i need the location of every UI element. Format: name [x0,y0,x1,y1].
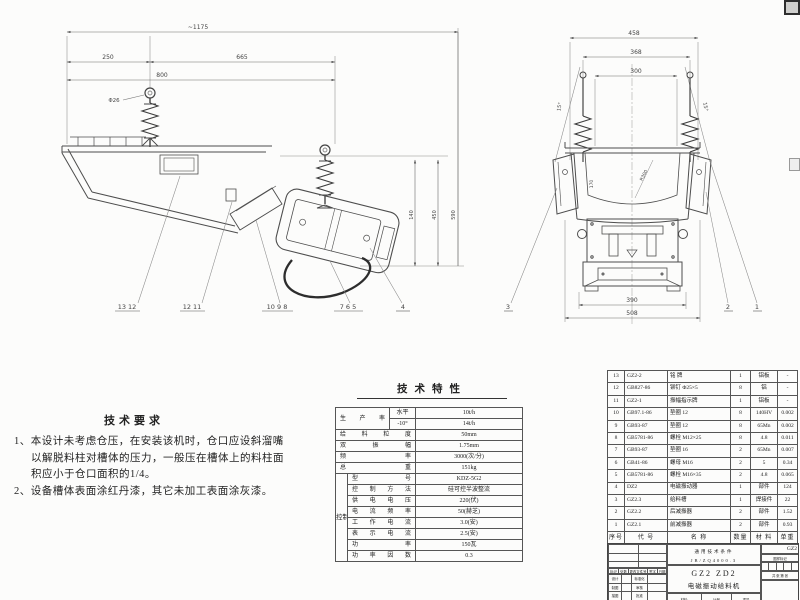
part-no: 9 [608,420,625,432]
dim-depth: 170 [589,180,595,189]
part-name: 垫圈 12 [668,408,731,420]
spec-row: 功率 150瓦 [336,540,523,551]
part-name: 给料槽 [668,494,731,506]
spec-row: 生产率 水平 10t/h [336,408,523,419]
part-no: 13 [608,371,625,383]
dim-v1: 140 [409,210,415,220]
parts-row: 13 GZ2-2 铭 牌 1 铝板 - [608,371,798,383]
spec-row: 供电电压 220(伏) [336,496,523,507]
vibrator-front [578,219,688,262]
sign-label: 标准化 [632,575,648,583]
callout-3: 3 [506,303,510,311]
part-weight: - [778,395,798,407]
part-material: 部件 [751,519,778,531]
spec-cond: -10° [390,419,416,430]
parts-table: 13 GZ2-2 铭 牌 1 铝板 - 12 GB827-86 铆钉 Φ25×5… [607,370,798,545]
part-qty: 8 [731,383,751,395]
part-material: 焊接件 [751,494,778,506]
part-material: 铝板 [751,371,778,383]
change-cell: 标记 [609,569,619,573]
parts-row: 1 GZ2.1 前减振器 2 部件 0.93 [608,519,798,531]
part-name: 螺栓 M12×25 [668,432,731,444]
scale-label: 比例 [702,594,732,600]
part-name: 电磁振动器 [668,482,731,494]
spec-value: 1.75mm [416,441,523,452]
part-code: GZ2.3 [625,494,668,506]
callout-4: 4 [401,303,405,311]
part-no: 2 [608,507,625,519]
spec-label: 频率 [336,452,416,463]
dim-bottom: 508 [626,310,638,317]
feed-trough [62,137,282,233]
drawing-sheet: ~1175 250 665 800 140 450 590 Φ26 [0,0,800,600]
part-no: 7 [608,445,625,457]
callout-1: 1 [755,303,759,311]
part-code: GB5781-86 [625,470,668,482]
part-name: 后减振器 [668,507,731,519]
product-name: 电磁振动给料机 [668,580,760,590]
change-cell: 更改文件号 [629,569,648,573]
part-material: 5 [751,457,778,469]
part-code: GZ2-2 [625,371,668,383]
spec-table-section: 技术特性 生产率 水平 10t/h -10° 14t/h 给料粒度 50mm 双… [335,381,523,562]
std-line2: JB/ZQ4000.3 [668,556,760,565]
parts-list: 13 GZ2-2 铭 牌 1 铝板 - 12 GB827-86 铆钉 Φ25×5… [607,370,798,545]
general-conditions: 通用技术条件 JB/ZQ4000.3 [667,544,761,565]
spec-row: 给料粒度 50mm [336,430,523,441]
part-qty: 2 [731,457,751,469]
part-weight: 22 [778,494,798,506]
part-code: GB41-86 [625,457,668,469]
part-material: 4.8 [751,432,778,444]
part-material: 140HV [751,408,778,420]
spec-label: 功率 [348,540,416,551]
spec-row: 控制箱 型号 KDZ-5G2 [336,474,523,485]
spec-value: 10t/h [416,408,523,419]
dim-v3: 590 [451,210,457,220]
part-code: DZ2 [625,482,668,494]
parts-row: 11 GZ2-1 振幅指示牌 1 铝板 - [608,395,798,407]
part-name: 振幅指示牌 [668,395,731,407]
trough-cross-section [565,142,700,223]
part-weight: 0.002 [778,408,798,420]
parts-row: 4 DZ2 电磁振动器 1 部件 124 [608,482,798,494]
part-no: 6 [608,457,625,469]
spec-row: 双振幅 1.75mm [336,441,523,452]
part-material: 4.8 [751,470,778,482]
spec-label: 型号 [348,474,416,485]
part-weight: - [778,383,798,395]
sign-label: 制图 [609,584,622,592]
callout-7-6-5: 7 6 5 [340,303,357,311]
dim-mid: 368 [630,49,642,56]
part-qty: 8 [731,408,751,420]
part-weight: 0.34 [778,457,798,469]
sheet-info-cell: 共 张 第 张 [761,571,798,580]
sign-label: 设计 [609,575,622,583]
dim-total: ~1175 [188,24,208,31]
part-name: 螺母 M16 [668,457,731,469]
part-name: 前减振器 [668,519,731,531]
title-block-left-grid [608,544,667,568]
change-cell: 处数 [619,569,629,573]
part-qty: 2 [731,470,751,482]
dim-mid: 665 [236,54,248,61]
part-code: GB97.1-86 [625,408,668,420]
part-weight: - [778,371,798,383]
part-no: 1 [608,519,625,531]
spec-table-title: 技术特性 [357,381,507,399]
sign-label: 批准 [632,592,648,600]
parts-row: 9 GB93-87 垫圈 12 8 65Mn 0.002 [608,420,798,432]
parts-row: 10 GB97.1-86 垫圈 12 8 140HV 0.002 [608,408,798,420]
part-no: 5 [608,470,625,482]
spec-label: 总重 [336,463,416,474]
spec-row: 表示电流 2.5(安) [336,529,523,540]
callout-12-11: 12 11 [183,303,202,311]
spec-value: 14t/h [416,419,523,430]
spec-value: KDZ-5G2 [416,474,523,485]
spec-row: 电流频率 50(赫芝) [336,507,523,518]
dim-span: 800 [156,72,168,79]
vibrator-base [583,262,682,291]
spec-label: 控制方法 [348,485,416,496]
right-blank-cell [761,580,798,600]
part-no: 12 [608,383,625,395]
part-qty: 1 [731,395,751,407]
dim-angle-right: 15° [701,102,709,112]
part-qty: 1 [731,371,751,383]
part-material: 65Mn [751,420,778,432]
parts-row: 5 GB5781-86 螺栓 M16×35 2 4.8 0.065 [608,470,798,482]
part-no: 3 [608,494,625,506]
parts-row: 12 GB827-86 铆钉 Φ25×5 8 铝 - [608,383,798,395]
front-spring-hanger [142,88,158,147]
spec-value: 151kg [416,463,523,474]
part-code: GB93-87 [625,420,668,432]
drawing-number: GZ2 [787,546,797,552]
side-view-drawing: ~1175 250 665 800 140 450 590 Φ26 [30,8,500,353]
part-weight: 0.93 [778,519,798,531]
tech-req-line: 积应小于仓口面积的1/4。 [14,467,332,484]
spec-label: 生产率 [336,408,390,430]
part-code: GB93-87 [625,445,668,457]
tech-requirements: 技术要求 1、本设计未考虑仓压，在安装该机时，仓口应设斜溜嘴 以解脱料柱对槽体的… [14,412,332,500]
model-number: GZ2 ZD2 [668,569,760,578]
parts-row: 6 GB41-86 螺母 M16 2 5 0.34 [608,457,798,469]
spec-row: 功率因数 0.3 [336,551,523,562]
spec-label: 电流频率 [348,507,416,518]
spec-table: 生产率 水平 10t/h -10° 14t/h 给料粒度 50mm 双振幅 1.… [335,407,523,562]
spec-value: 220(伏) [416,496,523,507]
part-material: 部件 [751,482,778,494]
part-name: 铭 牌 [668,371,731,383]
spec-label: 供电电压 [348,496,416,507]
part-material: 65Mn [751,445,778,457]
part-code: GB827-86 [625,383,668,395]
product-title-cell: GZ2 ZD2 电磁振动给料机 [667,565,761,593]
spec-value: 50(赫芝) [416,507,523,518]
part-no: 4 [608,482,625,494]
part-name: 垫圈 16 [668,445,731,457]
sheet-info: 共 张 第 张 [772,573,788,578]
part-qty: 2 [731,519,751,531]
electromagnetic-vibrator [274,187,402,275]
material-row: 材料: 比例 重量 [667,593,761,600]
part-code: GZ2.2 [625,507,668,519]
dim-top: 458 [628,30,640,37]
spec-row: 频率 3000(次/分) [336,452,523,463]
sheet-corner-mark [784,0,800,15]
parts-row: 7 GB93-87 垫圈 16 2 65Mn 0.007 [608,445,798,457]
tech-req-line: 以解脱料柱对槽体的压力，一般压在槽体上的料柱面 [14,451,332,468]
change-cell: 签字 [648,569,658,573]
spec-row: 工作电流 3.0(安) [336,518,523,529]
part-weight: 0.002 [778,420,798,432]
part-qty: 8 [731,420,751,432]
part-weight: 0.011 [778,432,798,444]
signature-grid: 设计 标准化 制图 审核 描图 批准 校核 日期 [608,574,667,600]
parts-row: 3 GZ2.3 给料槽 1 焊接件 22 [608,494,798,506]
part-qty: 8 [731,432,751,444]
dim-inner: 300 [630,68,642,75]
part-no: 10 [608,408,625,420]
part-material: 铝板 [751,395,778,407]
part-qty: 2 [731,507,751,519]
mark-label-cell: 图样标记 [761,554,798,562]
spec-value: 硅可控半波整流 [416,485,523,496]
dim-v2: 450 [432,210,438,220]
part-code: GZ2-1 [625,395,668,407]
hook-dia-label: Φ26 [108,98,120,104]
tech-req-line: 2、设备槽体表面涂红丹漆，其它未加工表面涂灰漆。 [14,484,332,501]
spec-group-label: 控制箱 [336,474,348,562]
part-name: 铆钉 Φ25×5 [668,383,731,395]
spec-label: 表示电流 [348,529,416,540]
part-weight: 1.52 [778,507,798,519]
dim-bottom-inner: 390 [626,297,638,304]
change-cell: 日期 [658,569,666,573]
parts-row: 2 GZ2.2 后减振器 2 部件 1.52 [608,507,798,519]
drawing-number-cell: GZ2 [761,544,798,554]
power-cable [284,258,370,297]
rear-spring-hanger [317,145,333,208]
part-weight: 124 [778,482,798,494]
spec-value: 0.3 [416,551,523,562]
title-block: 标记 处数 更改文件号 签字 日期 设计 标准化 制图 审核 描图 [607,543,799,600]
spec-value: 2.5(安) [416,529,523,540]
material-label: 材料: [668,594,702,600]
part-material: 铝 [751,383,778,395]
part-code: GB5781-86 [625,432,668,444]
sheet-edge-mark [789,158,800,171]
callout-10-9-8: 10 9 8 [267,303,288,311]
part-weight: 0.007 [778,445,798,457]
callout-2: 2 [726,303,730,311]
spec-label: 工作电流 [348,518,416,529]
part-qty: 1 [731,494,751,506]
spec-value: 3000(次/分) [416,452,523,463]
spec-value: 50mm [416,430,523,441]
parts-row: 8 GB5781-86 螺栓 M12×25 8 4.8 0.011 [608,432,798,444]
part-name: 垫圈 12 [668,420,731,432]
part-qty: 2 [731,445,751,457]
part-no: 8 [608,432,625,444]
tech-req-line: 1、本设计未考虑仓压，在安装该机时，仓口应设斜溜嘴 [14,434,332,451]
part-no: 11 [608,395,625,407]
dim-left: 250 [102,54,114,61]
part-code: GZ2.1 [625,519,668,531]
spec-cond: 水平 [390,408,416,419]
spec-value: 150瓦 [416,540,523,551]
front-view-drawing: 458 368 300 390 508 15° 15° 170 R300 [495,12,795,342]
spec-label: 功率因数 [348,551,416,562]
spec-value: 3.0(安) [416,518,523,529]
spec-row: 控制方法 硅可控半波整流 [336,485,523,496]
std-line1: 通用技术条件 [668,547,760,556]
spec-label: 给料粒度 [336,430,416,441]
sign-label: 描图 [609,592,622,600]
part-qty: 1 [731,482,751,494]
mark-label: 图样标记 [773,556,787,561]
sign-label: 审核 [632,584,648,592]
part-name: 螺栓 M16×35 [668,470,731,482]
tech-requirements-title: 技术要求 [54,412,214,428]
callout-13-12: 13 12 [118,303,137,311]
dim-angle-left: 15° [556,101,564,111]
weight-label: 重量 [732,594,760,600]
mark-boxes [761,562,798,571]
spec-label: 双振幅 [336,441,416,452]
spec-row: 总重 151kg [336,463,523,474]
part-weight: 0.065 [778,470,798,482]
part-material: 部件 [751,507,778,519]
